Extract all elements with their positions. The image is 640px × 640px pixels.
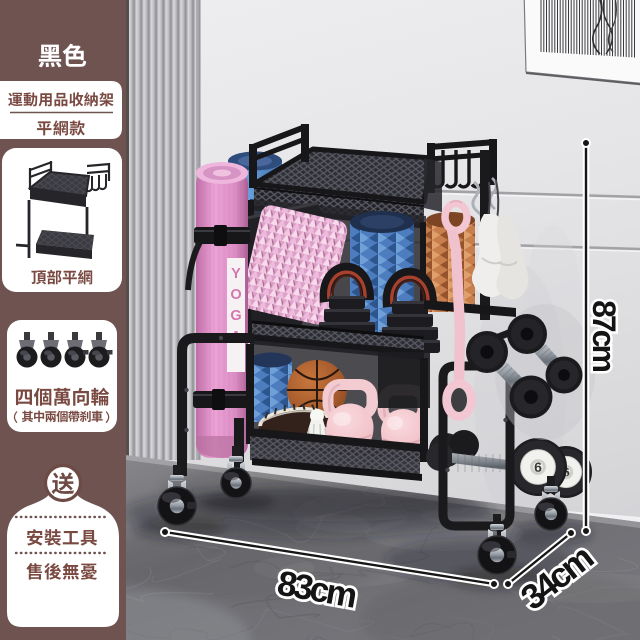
svg-text:G: G	[230, 308, 241, 324]
svg-text:87cm: 87cm	[586, 300, 622, 371]
svg-text:Y: Y	[231, 266, 241, 282]
svg-text:O: O	[230, 287, 241, 303]
